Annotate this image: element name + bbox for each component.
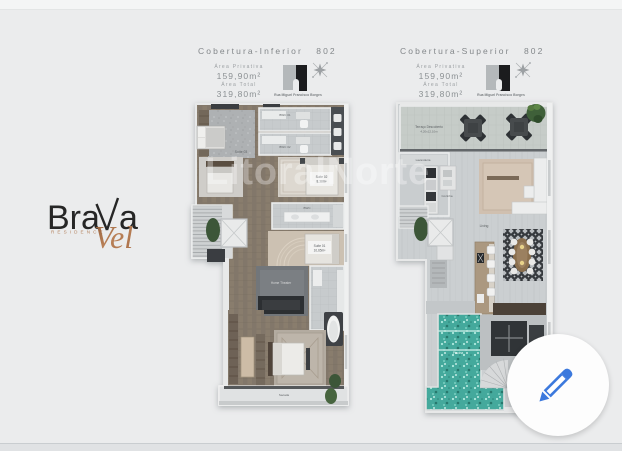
svg-text:Terraço Descoberto: Terraço Descoberto [415, 125, 443, 129]
svg-text:Living: Living [480, 224, 489, 228]
svg-text:Piscina: Piscina [453, 351, 464, 355]
svg-text:BWC 01: BWC 01 [279, 113, 291, 117]
svg-text:Suíte 01: Suíte 01 [314, 244, 326, 248]
svg-text:BWC 02: BWC 02 [279, 145, 291, 149]
svg-text:Vel: Vel [94, 219, 133, 255]
svg-text:Home Theater: Home Theater [271, 281, 292, 285]
svg-text:4,20x12,10m: 4,20x12,10m [420, 130, 438, 134]
svg-text:Sacada: Sacada [279, 393, 290, 397]
svg-text:BWC: BWC [304, 206, 312, 210]
svg-text:10,65m²: 10,65m² [314, 249, 326, 253]
